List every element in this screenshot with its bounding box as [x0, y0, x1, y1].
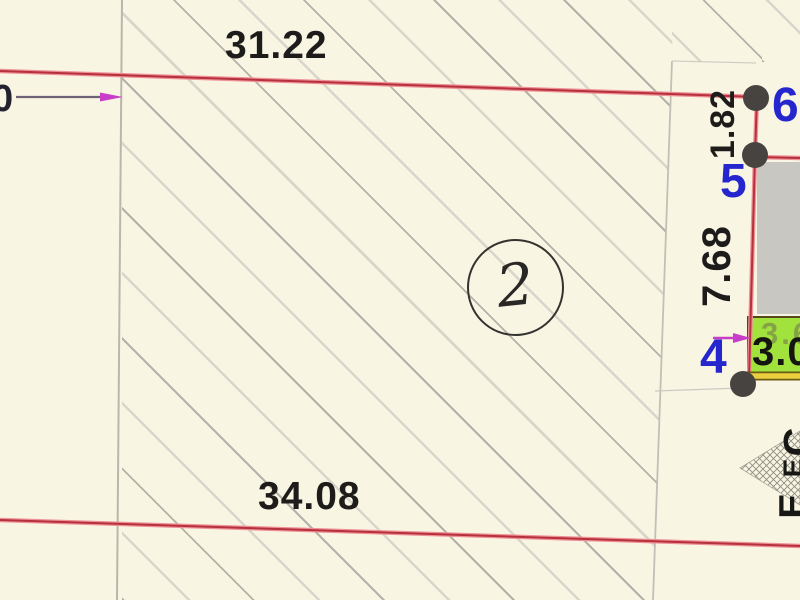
parcel-number-bubble[interactable]: 2: [467, 239, 564, 336]
left-measure-arrow: [16, 93, 123, 102]
cadastral-map-view: 3.6 3.0: [0, 0, 800, 600]
lower-tie-line: [655, 388, 741, 391]
edge-text-fragment: Е: [779, 459, 800, 478]
dimension-top: 31.22: [225, 26, 328, 65]
boundary-bottom-red-line: [0, 520, 800, 546]
left-boundary-line[interactable]: [117, 0, 122, 600]
vertex-label-5: 5: [720, 158, 747, 206]
boundary-right-red-line: [749, 97, 757, 379]
vertex-label-6: 6: [772, 82, 799, 130]
edge-text-fragment: С: [778, 428, 800, 457]
vertex-dot-4[interactable]: [730, 371, 756, 397]
right-boundary-line[interactable]: [653, 61, 672, 600]
topright-tie-line: [672, 61, 756, 63]
vertex-label-4: 4: [700, 334, 727, 382]
dimension-right-lower: 7.68: [697, 201, 741, 331]
boundary-top-red-line: [0, 71, 757, 97]
origin-label: 0: [0, 80, 13, 118]
vertex-dot-6[interactable]: [743, 85, 769, 111]
parcel-number-text: 2: [494, 254, 537, 316]
linework-layer: [0, 0, 800, 600]
edge-text-fragment: Е: [775, 493, 800, 518]
dimension-bottom: 34.08: [258, 477, 361, 516]
